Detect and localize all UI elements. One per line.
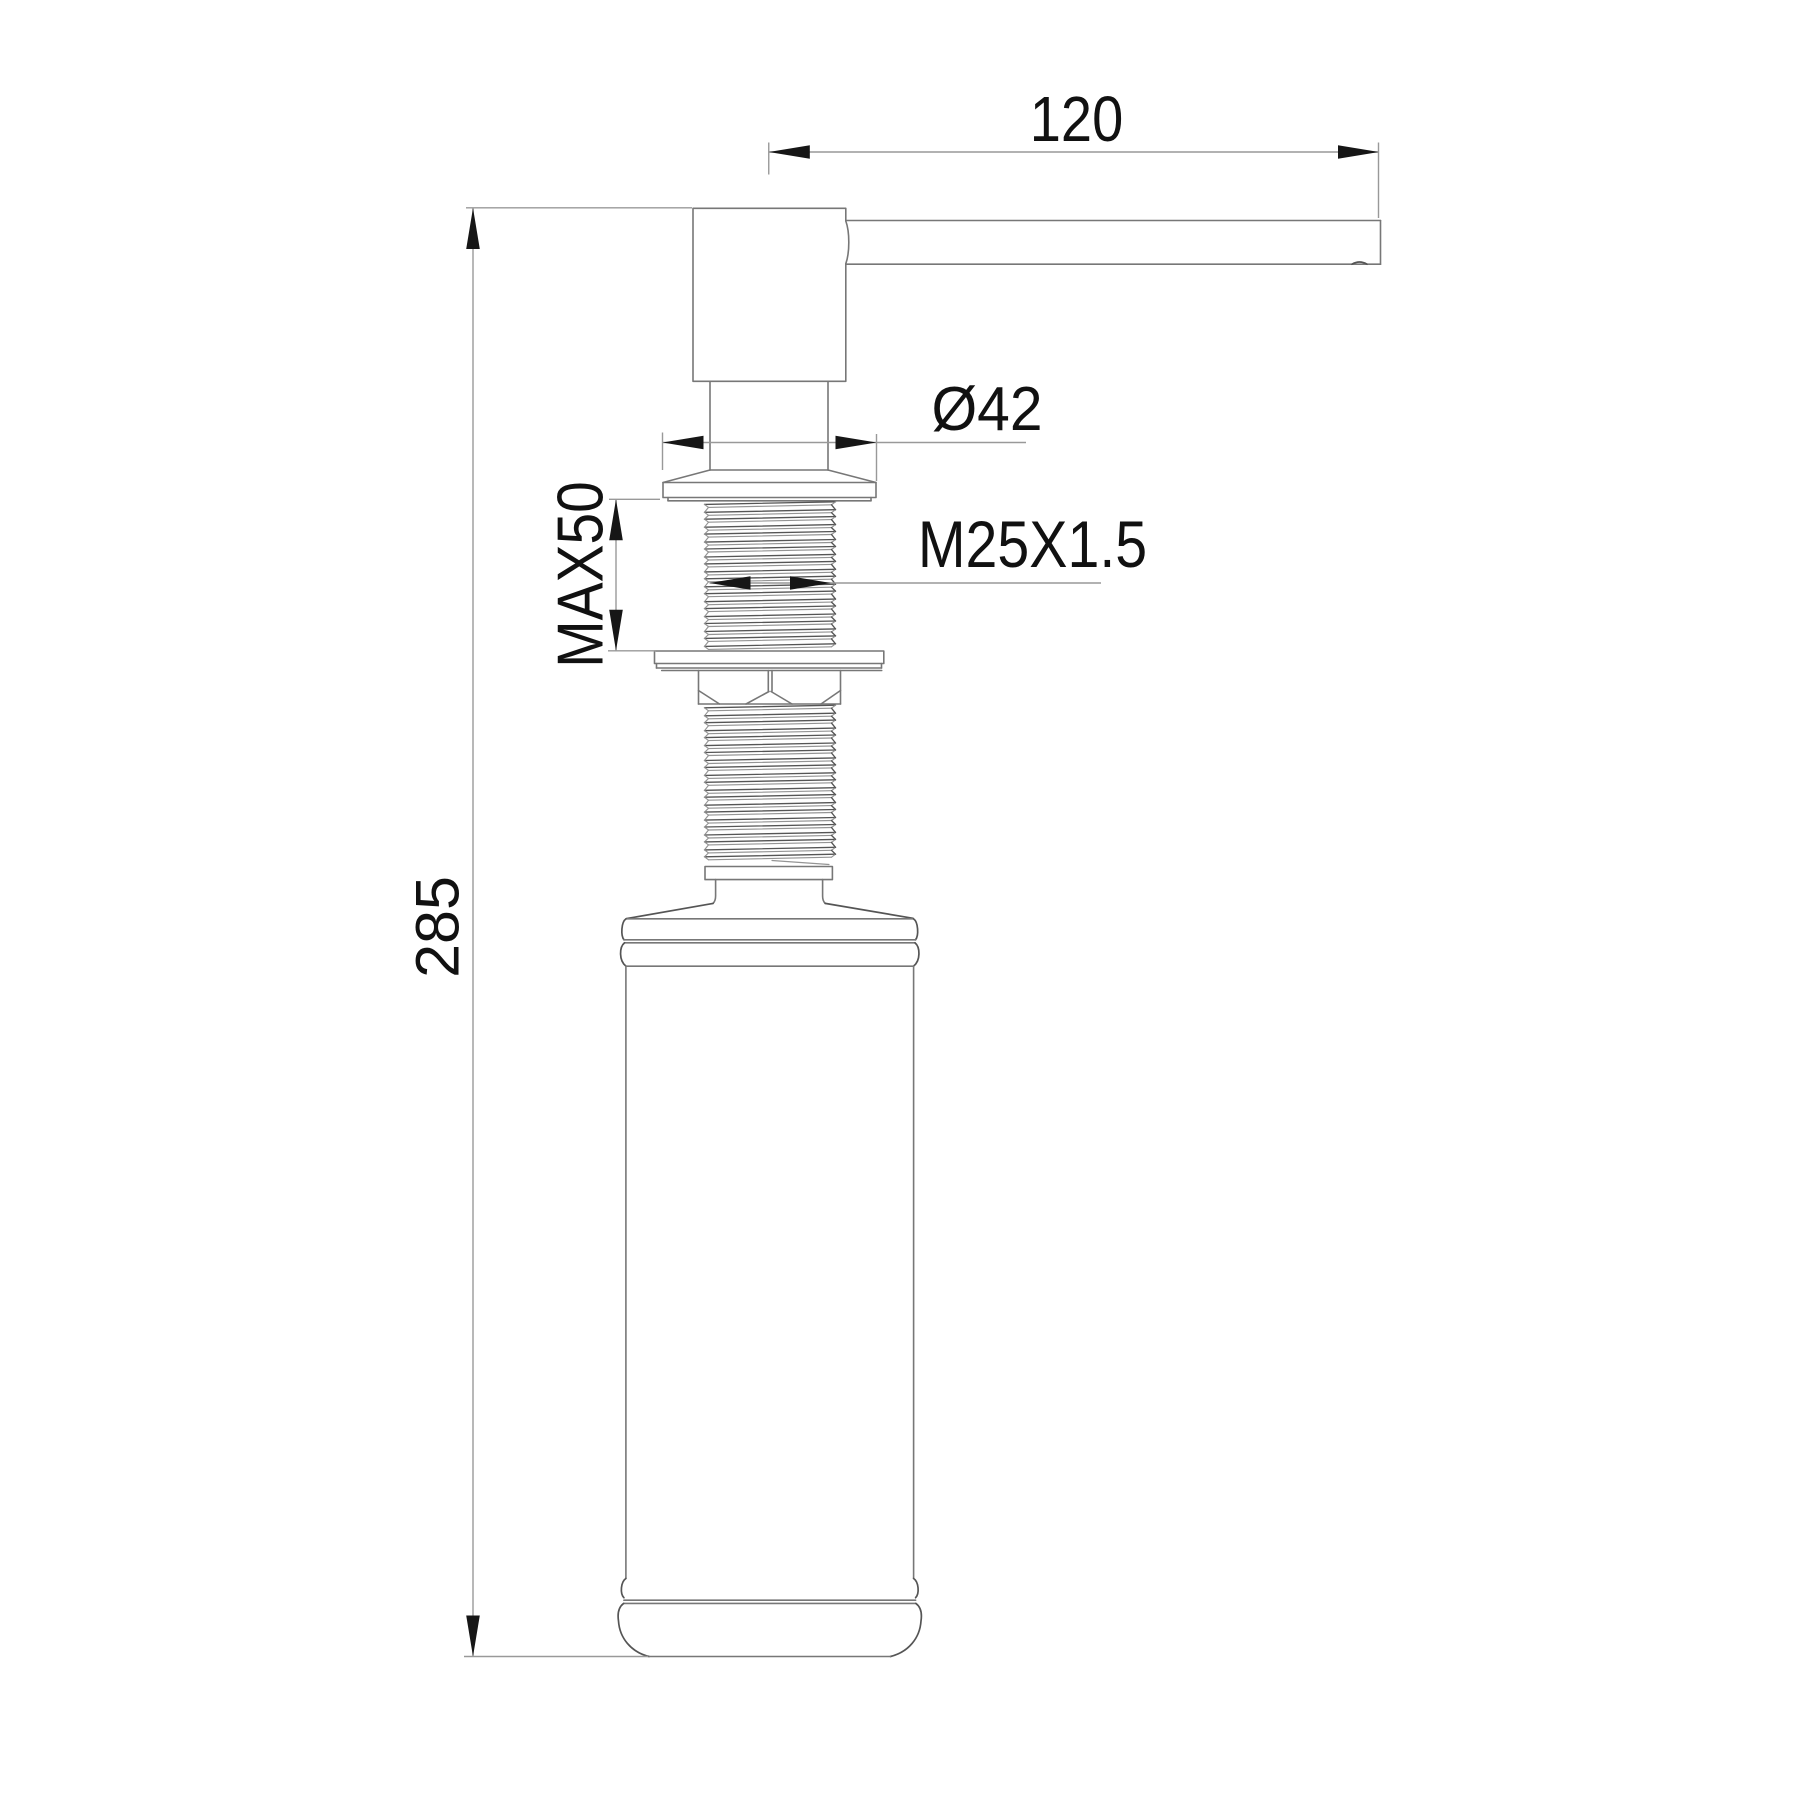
svg-text:M25X1.5: M25X1.5 <box>918 508 1147 581</box>
svg-text:Ø42: Ø42 <box>931 373 1042 443</box>
svg-text:MAX50: MAX50 <box>544 481 616 667</box>
svg-text:120: 120 <box>1030 82 1123 155</box>
svg-text:285: 285 <box>403 876 471 978</box>
